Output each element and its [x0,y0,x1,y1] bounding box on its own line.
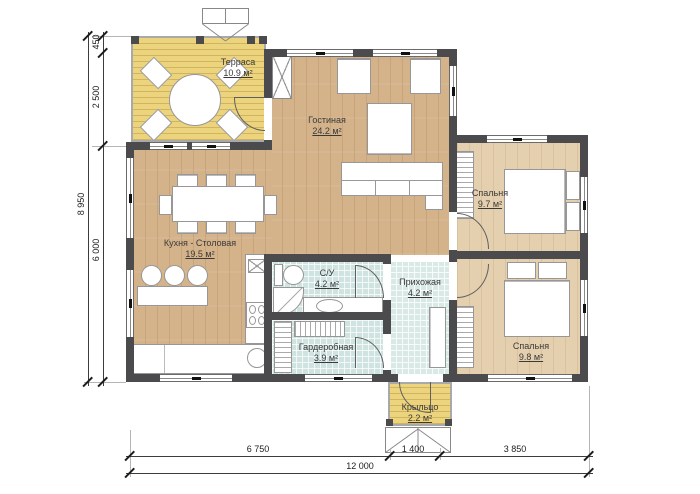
room-name: Спальня [499,341,563,352]
extension-line [589,386,590,477]
dining-table [172,186,264,222]
room-name: Кухня - Столовая [149,238,251,249]
room-label-living: Гостиная 24.2 м² [292,115,362,138]
armchair [410,58,441,94]
room-label-bathroom: С/У 4.2 м² [297,268,357,291]
bar-stool [164,265,185,286]
door-opening [264,98,272,140]
room-area: 3.9 м² [293,353,359,364]
bed [504,280,570,337]
dining-chair [159,195,172,215]
dining-chair [206,221,227,234]
bar-counter [137,286,208,306]
dimension-line [88,32,89,386]
room-area: 2.2 м² [389,413,451,424]
room-name: С/У [297,268,357,279]
coffee-table [367,103,412,155]
window [580,280,588,336]
dining-chair [177,221,198,234]
window [126,158,134,238]
dim-label-3850: 3 850 [475,444,555,454]
extension-line [92,146,126,147]
dim-label-6000: 6 000 [91,230,101,270]
burner [249,316,256,325]
room-area: 24.2 м² [292,126,362,137]
room-label-bedroom1: Спальня 9.7 м² [459,188,521,211]
room-label-kitchen: Кухня - Столовая 19.5 м² [149,238,251,261]
room-name: Спальня [459,188,521,199]
pillow [566,202,580,231]
dim-label-12000: 12 000 [320,461,400,471]
terrace-post [131,36,139,44]
room-name: Крыльцо [389,402,451,413]
room-area: 9.7 м² [459,199,521,210]
window [488,374,572,382]
wardrobe-rack [294,321,345,337]
bar-stool [187,265,208,286]
window [287,49,353,57]
toilet-tank [274,264,283,286]
room-area: 19.5 м² [149,249,251,260]
room-area: 4.2 м² [297,279,357,290]
room-label-porch: Крыльцо 2.2 м² [389,402,451,425]
dining-chair [235,221,256,234]
window [126,270,134,337]
burner [249,305,256,314]
sofa [341,162,443,196]
window [305,374,372,382]
room-name: Прихожая [391,277,449,288]
extension-line [84,382,126,383]
room-label-hallway: Прихожая 4.2 м² [391,277,449,300]
room-area: 4.2 м² [391,288,449,299]
window [373,49,437,57]
dining-chair [264,195,277,215]
room-label-terrace: Терраса 10.9 м² [204,57,272,80]
window [580,177,588,233]
dimension-line [126,473,593,474]
dimension-line [103,32,104,386]
dim-label-2500: 2 500 [91,77,101,117]
window [487,135,547,143]
pillow [538,262,567,279]
wall [264,312,391,320]
room-name: Гардеробная [293,342,359,353]
dim-label-8950: 8 950 [76,184,86,224]
window [449,66,457,116]
door-opening [449,212,457,250]
utility-shaft [272,55,292,99]
room-name: Терраса [204,57,272,68]
floor-plan-canvas: Терраса 10.9 м² Гостиная 24.2 м² Спальня… [0,0,700,494]
dim-label-450: 450 [91,22,101,62]
room-area: 10.9 м² [204,68,272,79]
vanity-sink [316,299,343,313]
window [150,142,187,150]
door-leaf [234,97,265,98]
wardrobe-rack [274,321,292,373]
room-name: Гостиная [292,115,362,126]
wardrobe-rack [456,306,474,368]
hallway-cabinet [429,307,446,368]
door-opening [449,262,457,300]
terrace-steps-icon [202,8,249,42]
room-area: 9.8 м² [499,352,563,363]
wall [449,251,588,259]
door-opening [383,334,391,370]
armchair [337,58,371,94]
terrace-post [259,36,267,44]
room-label-wardrobe: Гардеробная 3.9 м² [293,342,359,365]
pillow [566,171,580,200]
dim-label-1400: 1 400 [373,444,453,454]
window [192,142,230,150]
wall [264,254,391,262]
terrace-table [169,74,221,126]
window [160,374,232,382]
dimension-line [126,456,593,457]
dim-label-6750: 6 750 [218,444,298,454]
pillow [507,262,536,279]
room-label-bedroom2: Спальня 9.8 м² [499,341,563,364]
door-opening [398,374,443,382]
door-opening [383,264,391,300]
bar-stool [141,265,162,286]
